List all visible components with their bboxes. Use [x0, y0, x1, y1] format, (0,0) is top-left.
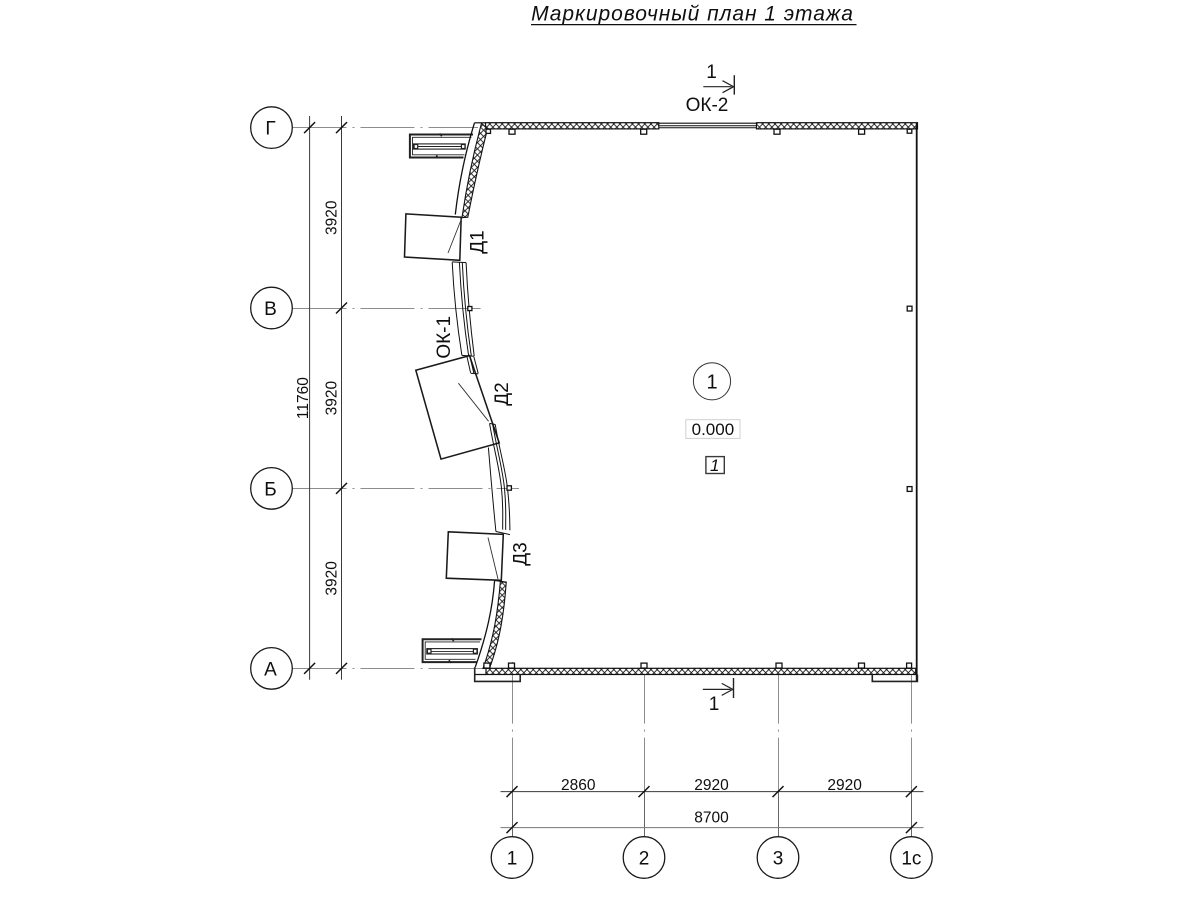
svg-text:Маркировочный план 1 этажа: Маркировочный план 1 этажа [531, 3, 854, 26]
svg-text:0.000: 0.000 [692, 420, 735, 439]
svg-text:2860: 2860 [561, 777, 596, 794]
svg-text:2920: 2920 [694, 777, 729, 794]
svg-text:3920: 3920 [323, 561, 340, 596]
svg-text:1: 1 [507, 849, 518, 870]
svg-text:3: 3 [773, 849, 784, 870]
svg-text:8700: 8700 [694, 809, 729, 826]
svg-text:А: А [264, 659, 277, 680]
svg-text:Г: Г [265, 119, 275, 140]
svg-text:Б: Б [264, 479, 276, 500]
svg-text:Д1: Д1 [467, 230, 488, 253]
svg-text:1: 1 [709, 694, 720, 715]
svg-text:ОК-2: ОК-2 [686, 95, 729, 116]
svg-text:3920: 3920 [323, 200, 340, 235]
svg-text:2: 2 [639, 849, 650, 870]
svg-text:2920: 2920 [827, 777, 862, 794]
svg-text:1: 1 [706, 62, 717, 83]
svg-text:В: В [264, 299, 277, 320]
svg-text:Д3: Д3 [511, 542, 532, 565]
svg-text:1: 1 [710, 456, 719, 475]
svg-text:1: 1 [706, 372, 717, 394]
svg-text:Д2: Д2 [492, 382, 513, 405]
svg-text:3920: 3920 [323, 380, 340, 415]
svg-text:11760: 11760 [295, 377, 312, 419]
svg-text:ОК-1: ОК-1 [434, 316, 455, 359]
svg-text:1с: 1с [901, 849, 921, 870]
